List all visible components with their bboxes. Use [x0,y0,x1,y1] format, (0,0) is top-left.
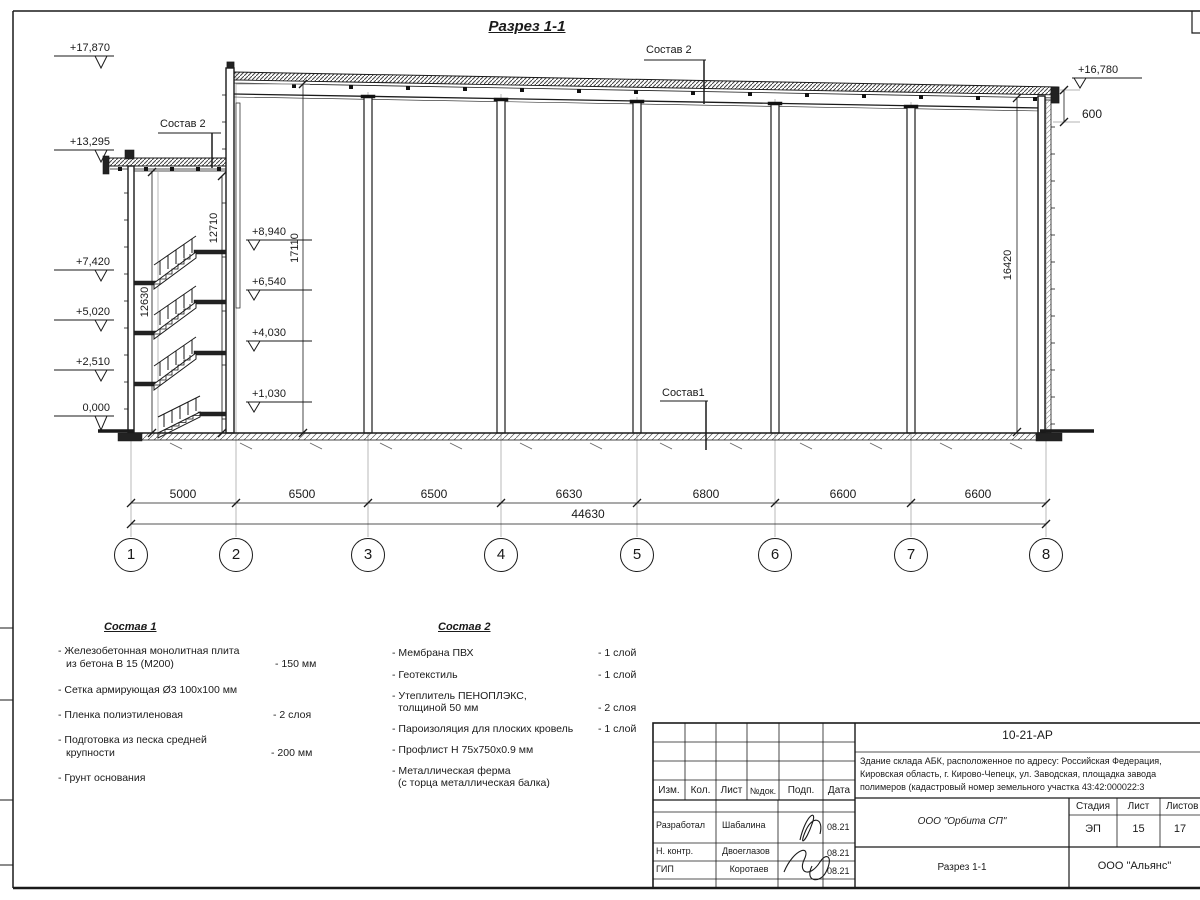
tb-doc-number: 10-21-АР [855,730,1200,741]
foundation-left [118,433,142,441]
legend1-item-2: - Пленка полиэтиленовая [58,709,183,721]
legend2-item-5b: (с торца металлическая балка) [398,777,550,789]
span-dim-3: 6630 [539,488,599,501]
span-dim-6: 6600 [948,488,1008,501]
legend2-value-2: - 2 слоя [598,702,636,714]
columns [361,95,918,433]
tb-row0-name: Шабалина [722,820,776,831]
vdim-12630: 12630 [139,272,151,332]
elevation-left-5: 0,000 [52,402,110,415]
wall-grid2 [226,68,234,433]
grid-bubble-5: 5 [620,547,654,563]
frame-corner-box [1192,11,1200,33]
wall-grid8-panel [1045,100,1051,433]
grid-bubble-1: 1 [114,547,148,563]
tb-col-ndok: №док. [747,786,779,797]
callout-leaders [158,60,708,450]
callout-sostav2-left: Состав 2 [160,118,206,131]
legend2-heading: Состав 2 [438,621,491,633]
wall-grid2-liner [236,103,240,308]
legend1-heading: Состав 1 [104,621,157,633]
tb-sheet-value: 15 [1117,824,1160,835]
legend2-item-2b: толщиной 50 мм [398,702,478,714]
tb-sheets-label: Листов [1166,801,1200,812]
span-dim-0: 5000 [153,488,213,501]
tb-col-list: Лист [716,785,747,796]
legend1-item-3b: крупности [66,747,115,759]
floor-ground [98,431,1094,449]
elevation-stair-2: +4,030 [252,327,286,340]
legend2-value-0: - 1 слой [598,647,636,659]
tb-row1-role: Н. контр. [656,846,714,857]
tb-address-line-2: полимеров (кадастровый номер земельного … [860,781,1200,793]
legend1-item-1: - Сетка армирующая Ø3 100x100 мм [58,684,237,696]
span-dim-1: 6500 [272,488,332,501]
wall-grid8-column [1038,96,1045,433]
roof-fascia [1051,87,1059,103]
elevation-stair-1: +6,540 [252,276,286,289]
tb-row1-name: Двоеглазов [722,846,776,857]
legend2-item-1: - Геотекстиль [392,669,458,681]
tb-row2-date: 08.21 [827,866,855,877]
tb-address-line-1: Кировская область, г. Кирово-Чепецк, ул.… [860,768,1200,780]
legend2-item-2: - Утеплитель ПЕНОПЛЭКС, [392,690,527,702]
grid-bubble-8: 8 [1029,547,1063,563]
dim-600: 600 [1082,108,1122,121]
tb-row2-role: ГИП [656,864,714,875]
grid-bubble-2: 2 [219,547,253,563]
vdim-12710: 12710 [208,198,220,258]
drawing-sheet: Разрез 1-1 +17,870 +13,295 +7,420 +5,020… [0,0,1200,900]
tb-sheets-value: 17 [1160,824,1200,835]
tower-parapet [125,150,134,159]
tb-row1-date: 08.21 [827,848,855,859]
vertical-dimensions [148,80,1080,437]
callout-sostav1: Состав1 [662,387,705,400]
legend1-item-4: - Грунт основания [58,772,145,784]
tb-row0-date: 08.21 [827,822,855,833]
legend1-value-2: - 2 слоя [273,709,311,721]
tb-contractor: ООО "Альянс" [1069,861,1200,872]
grid-bubble-7: 7 [894,547,928,563]
grid-bubble-6: 6 [758,547,792,563]
span-dim-5: 6600 [813,488,873,501]
tb-sheet-title: Разрез 1-1 [855,862,1069,873]
elevation-left-3: +5,020 [52,306,110,319]
vdim-17110: 17110 [289,218,301,278]
legend2-item-3: - Пароизоляция для плоских кровель [392,723,573,735]
legend1-value-3: - 200 мм [271,747,312,759]
elevation-left-0: +17,870 [52,42,110,55]
span-dim-2: 6500 [404,488,464,501]
span-dim-4: 6800 [676,488,736,501]
tb-company: ООО "Орбита СП" [855,816,1069,827]
callout-sostav2-top: Состав 2 [646,44,692,57]
grid-bubble-3: 3 [351,547,385,563]
elevation-stair-3: +1,030 [252,388,286,401]
tb-col-podp: Подп. [779,785,823,796]
grid-bubble-4: 4 [484,547,518,563]
ground-break-marks [170,443,1022,449]
wall-grid8-ticks [1051,127,1055,424]
tb-row0-role: Разработал [656,820,714,831]
stair-flights [154,252,200,438]
legend1-item-0: - Железобетонная монолитная плита [58,645,239,657]
legend2-item-5: - Металлическая ферма [392,765,511,777]
drawing-title: Разрез 1-1 [466,20,588,33]
legend2-item-0: - Мембрана ПВХ [392,647,474,659]
main-roof [227,62,1059,111]
legend2-item-4: - Профлист Н 75x750x0.9 мм [392,744,533,756]
vdim-16420: 16420 [1002,235,1014,295]
elevation-right: +16,780 [1078,64,1118,77]
tb-sheet-label: Лист [1117,801,1160,812]
legend2-value-1: - 1 слой [598,669,636,681]
stair-tower-roof [103,150,230,174]
tb-stage-value: ЭП [1069,824,1117,835]
total-dim: 44630 [553,508,623,521]
elevation-left-2: +7,420 [52,256,110,269]
tb-col-kol: Кол. [685,785,716,796]
elevation-stair-0: +8,940 [252,226,286,239]
staircase [134,236,226,438]
legend1-value-0: - 150 мм [275,658,316,670]
signature-2 [784,850,829,879]
legend1-item-0b: из бетона В 15 (М200) [66,658,174,670]
tb-address-line-0: Здание склада АБК, расположенное по адре… [860,755,1200,767]
wall-grid1 [128,166,134,433]
signature-1 [800,815,821,841]
legend2-value-3: - 1 слой [598,723,636,735]
elevation-left-4: +2,510 [52,356,110,369]
tb-col-izm: Изм. [653,785,685,796]
tb-row2-name: Коротаев [722,864,776,875]
elevation-left-1: +13,295 [52,136,110,149]
legend1-item-3: - Подготовка из песка средней [58,734,207,746]
foundation-right [1036,433,1062,441]
tb-stage-label: Стадия [1069,801,1117,812]
roof-drip-edge [103,156,109,174]
tb-col-data: Дата [823,785,855,796]
